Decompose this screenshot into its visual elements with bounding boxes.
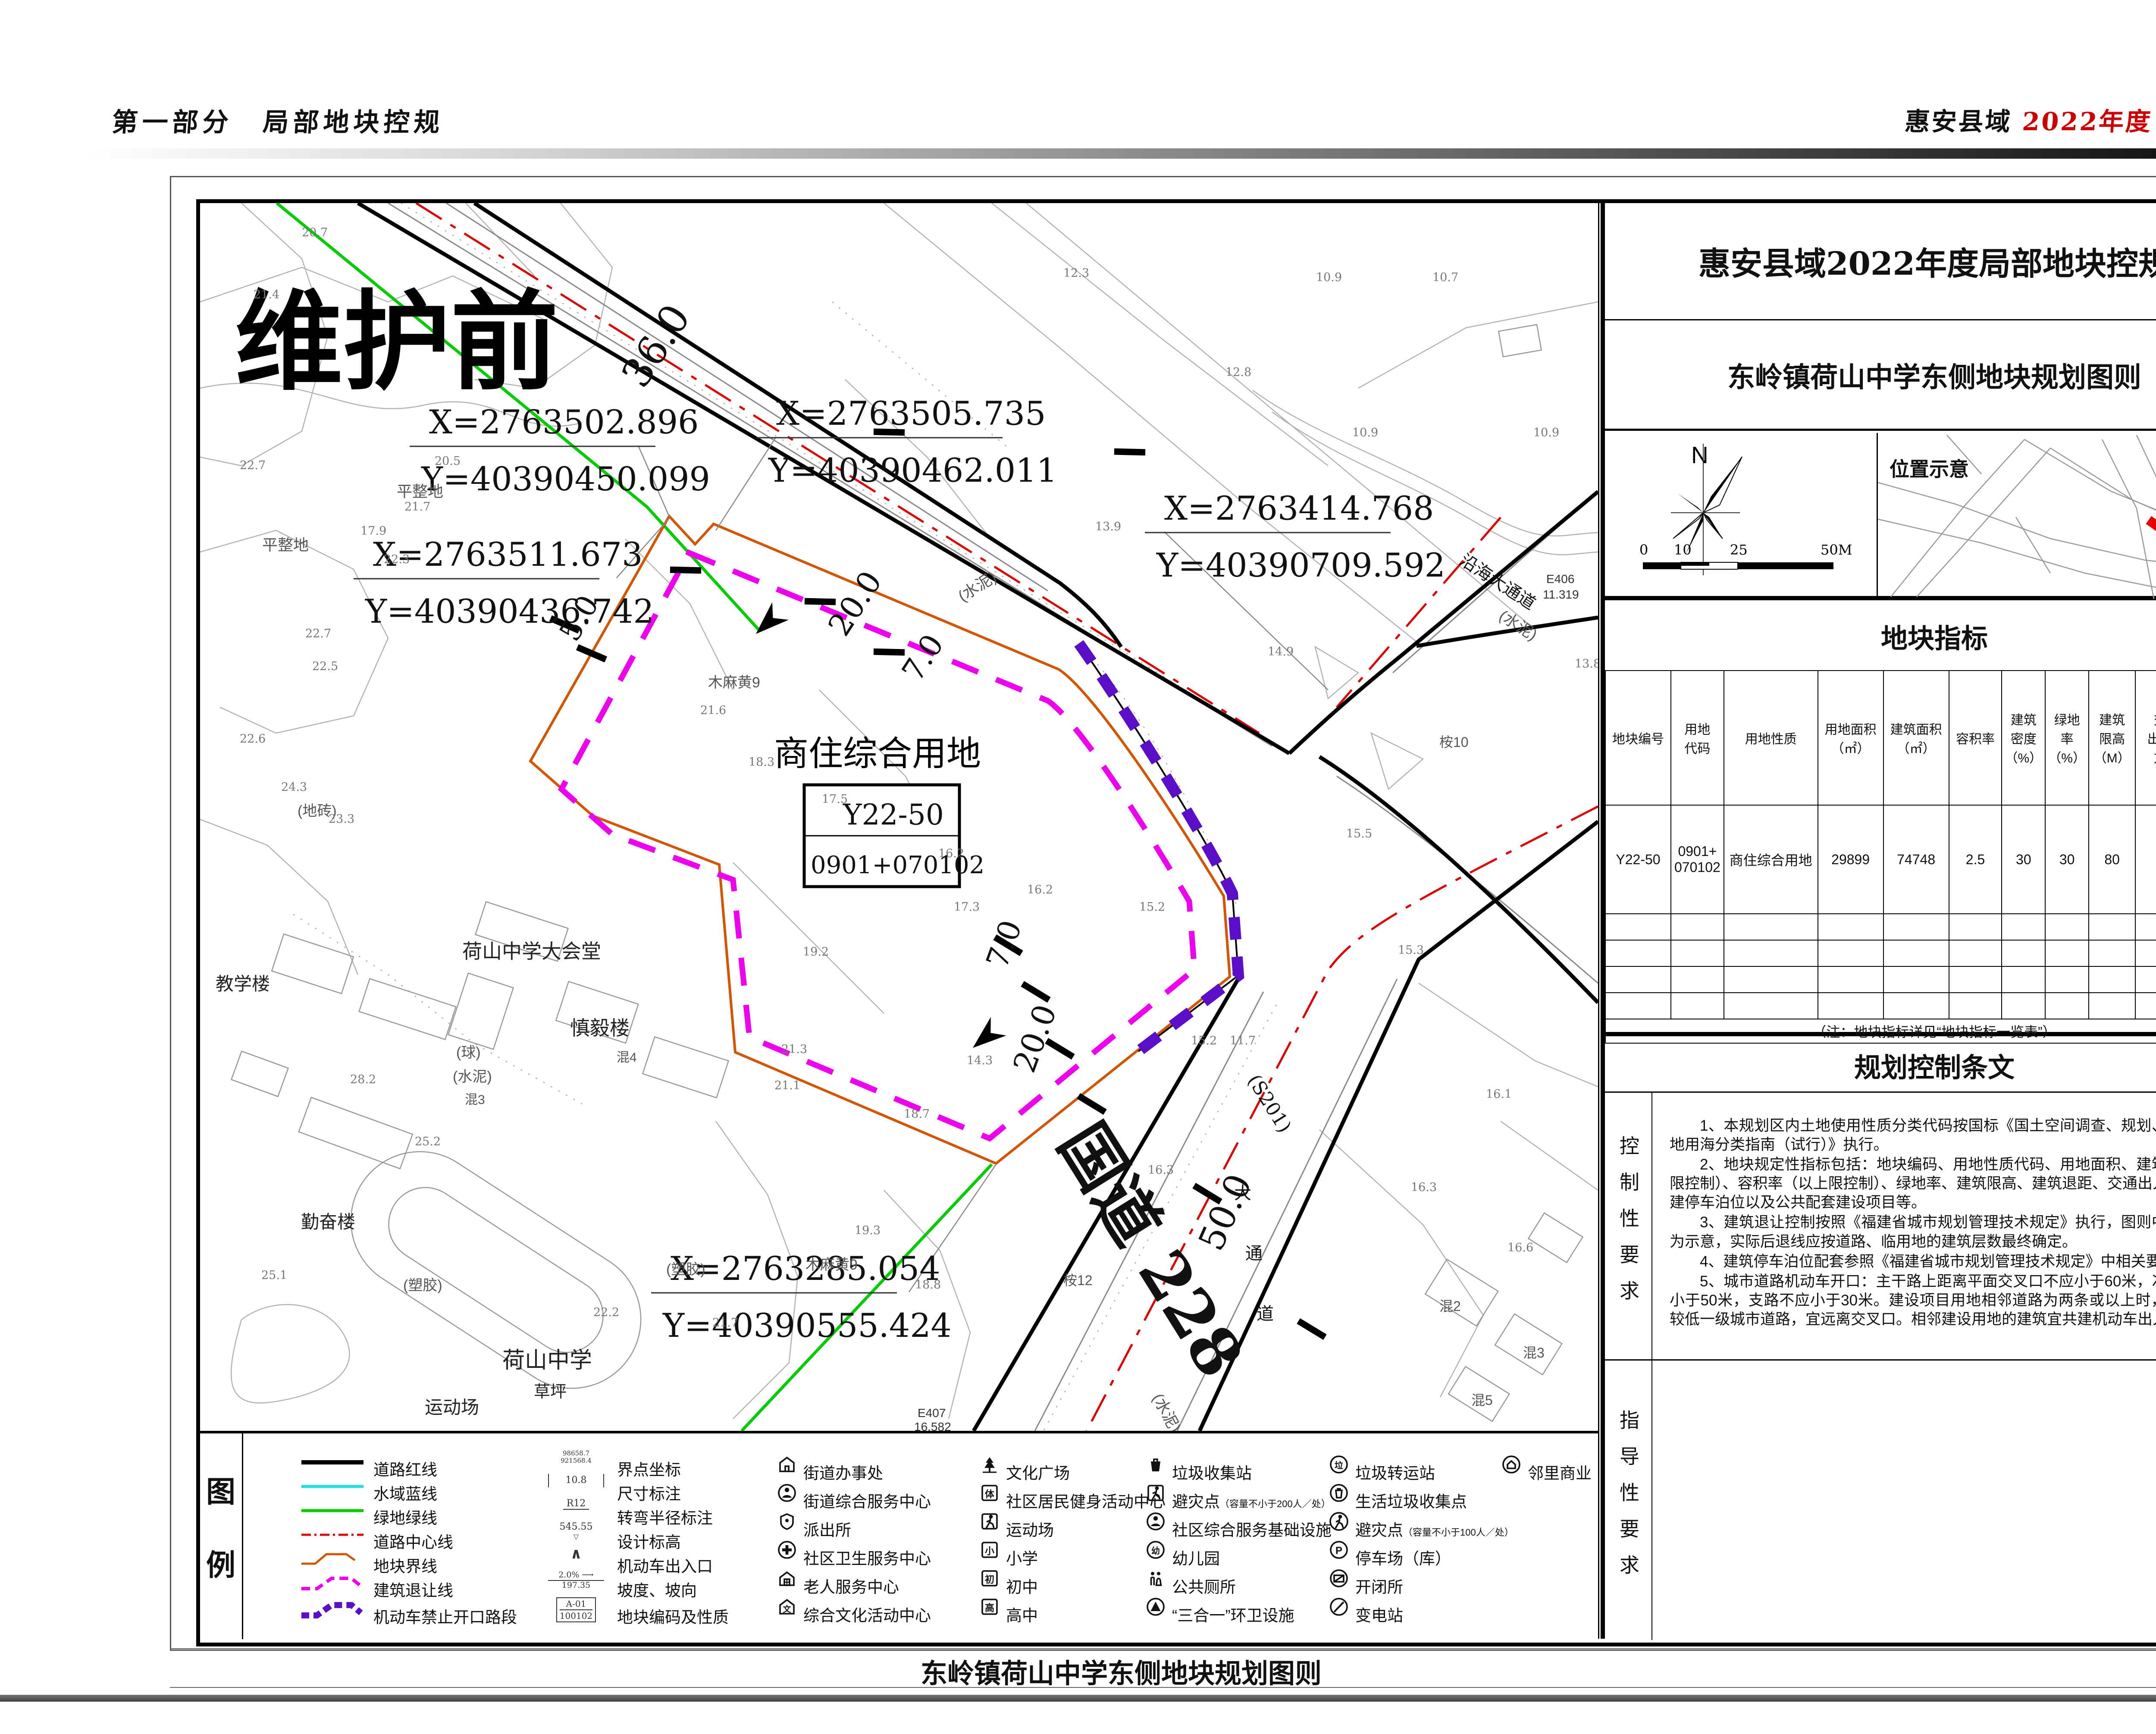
elevation-label: 18.8 bbox=[915, 1278, 941, 1292]
doc-section-title: 第一部分 局部地块控规 bbox=[111, 101, 445, 139]
indicators-cell: 74748 bbox=[1883, 805, 1949, 914]
place-label: 16.582 bbox=[914, 1420, 951, 1431]
elevation-label: 10.9 bbox=[1352, 426, 1378, 439]
elevation-label: 18.3 bbox=[749, 756, 774, 769]
公共厕所-icon bbox=[1145, 1568, 1166, 1589]
legend-item-label: 转弯半径标注 bbox=[617, 1505, 713, 1528]
indicators-cell: 2.5 bbox=[1949, 805, 2002, 914]
indicators-col-header: 绿地 率 （%） bbox=[2045, 671, 2089, 805]
legend-item-label: 生活垃圾收集点 bbox=[1355, 1489, 1467, 1512]
legend-item-label: 道路红线 bbox=[373, 1457, 437, 1480]
provision-paragraph: 5、城市道路机动车开口：主干路上距离平面交叉口不应小于60米，次干路上不应小于5… bbox=[1670, 1272, 2156, 1329]
place-label: E406 bbox=[1546, 572, 1574, 586]
elevation-label: 22.7 bbox=[240, 459, 266, 472]
变电站-icon bbox=[1329, 1596, 1349, 1617]
legend-item-label: 运动场 bbox=[1006, 1517, 1054, 1540]
legend-annot-symbol-coords: 98658.7921568.4 bbox=[548, 1450, 604, 1464]
indicators-empty-cell bbox=[2045, 914, 2089, 940]
place-label: 混4 bbox=[617, 1050, 637, 1065]
elevation-label: 17.9 bbox=[360, 524, 386, 538]
elevation-label: 22.7 bbox=[305, 627, 331, 640]
place-label: 混5 bbox=[1471, 1392, 1493, 1408]
legend-char-2: 例 bbox=[206, 1541, 235, 1584]
legend-item-note: （容量不小于100人／处） bbox=[1403, 1527, 1514, 1538]
indicators-col-header: 建筑 密度 （%） bbox=[2002, 671, 2045, 805]
road-name-label: 道 bbox=[1257, 1304, 1274, 1324]
indicators-empty-cell bbox=[1949, 940, 2002, 966]
coordinate-x: X=2763505.735 bbox=[776, 394, 1046, 433]
legend-item-label: 社区综合服务基础设施 bbox=[1172, 1517, 1332, 1540]
indicators-title: 地块指标 bbox=[1605, 617, 2156, 655]
legend-item-label: 公共厕所 bbox=[1172, 1574, 1236, 1597]
elevation-label: 21.7 bbox=[404, 500, 430, 514]
legend-item-label: 建筑退让线 bbox=[373, 1577, 453, 1601]
indicators-empty-cell bbox=[1724, 993, 1818, 1019]
indicators-col-header: 地块编号 bbox=[1605, 671, 1671, 805]
road-name-label: 沿海大通道 bbox=[1456, 550, 1539, 614]
svg-text:垃: 垃 bbox=[1335, 1460, 1343, 1471]
legend-item-label: 避灾点（容量不小于200人／处） bbox=[1172, 1489, 1331, 1512]
indicators-empty-cell bbox=[1671, 940, 1724, 966]
place-label: 11.319 bbox=[1543, 588, 1579, 601]
indicators-empty-cell bbox=[1883, 940, 1949, 966]
coordinate-y: Y=40390450.099 bbox=[421, 460, 710, 498]
place-label: 教学楼 bbox=[216, 974, 270, 994]
provision-paragraph: 1、本规划区内土地使用性质分类代码按国标《国土空间调查、规划、用途管制用地用海分… bbox=[1670, 1116, 2156, 1154]
indicators-empty-cell bbox=[2135, 993, 2156, 1019]
watermark-before-maintenance: 维护前 bbox=[235, 282, 558, 402]
legend-item-label: 地块编码及性质 bbox=[617, 1604, 729, 1627]
svg-text:P: P bbox=[1335, 1545, 1342, 1557]
legend-item-label: 机动车出入口 bbox=[617, 1553, 713, 1577]
indicators-empty-cell bbox=[2089, 993, 2135, 1019]
place-label: (球) bbox=[456, 1044, 481, 1061]
elevation-label: 13.9 bbox=[1095, 520, 1121, 533]
provision-paragraph: 4、建筑停车泊位配套参照《福建省城市规划管理技术规定》中相关要求执行。 bbox=[1670, 1252, 2156, 1271]
coordinate-y: Y=40390436.742 bbox=[365, 592, 654, 630]
location-sketch bbox=[1878, 433, 2156, 600]
place-label: 混3 bbox=[1523, 1345, 1545, 1361]
indicators-empty-cell bbox=[2002, 914, 2045, 940]
indicators-empty-cell bbox=[1949, 914, 2002, 940]
legend-item-label: 垃圾收集站 bbox=[1172, 1460, 1252, 1483]
svg-text:高: 高 bbox=[985, 1602, 994, 1613]
legend-annot-symbol-dim: 10.8 bbox=[548, 1474, 604, 1487]
legend-annot-symbol-slope: 2.0% ⟶197.35 bbox=[548, 1571, 604, 1590]
indicators-empty-cell bbox=[2002, 940, 2045, 966]
legend-item-label: 开闭所 bbox=[1355, 1574, 1403, 1597]
elevation-label: 10.7 bbox=[1432, 271, 1458, 284]
避灾点-icon bbox=[1145, 1483, 1166, 1503]
indicators-empty-cell bbox=[2002, 993, 2045, 1019]
road-width-label: 7.0 bbox=[979, 916, 1029, 973]
indicators-empty-cell bbox=[1724, 914, 1818, 940]
幼儿园-icon: 幼 bbox=[1145, 1540, 1166, 1560]
sheet-bottom-title: 东岭镇荷山中学东侧地块规划图则 bbox=[690, 1652, 1552, 1690]
elevation-label: 20.5 bbox=[435, 455, 461, 468]
provisions-row-control: 控制性要求 1、本规划区内土地使用性质分类代码按国标《国土空间调查、规划、用途管… bbox=[1605, 1093, 2156, 1361]
elevation-label: 21.6 bbox=[700, 704, 726, 717]
legend-item-label: 文化广场 bbox=[1006, 1460, 1070, 1483]
elevation-label: 19.2 bbox=[803, 945, 829, 959]
elevation-label: 16.6 bbox=[1507, 1241, 1533, 1254]
indicators-empty-cell bbox=[2045, 993, 2089, 1019]
location-parcel-marker bbox=[2146, 516, 2156, 532]
scale-bar: 0 10 25 50M bbox=[1639, 542, 1852, 569]
elevation-label: 16.1 bbox=[1486, 1088, 1512, 1101]
indicators-empty-cell bbox=[1724, 966, 1818, 993]
legend-item-label: 坡度、坡向 bbox=[617, 1577, 697, 1601]
legend-annot-symbol-entry: ∧ bbox=[548, 1546, 604, 1561]
legend-item-label: 垃圾转运站 bbox=[1355, 1460, 1435, 1483]
elevation-label: 22.6 bbox=[240, 732, 266, 746]
road-width-label: 20.0 bbox=[1006, 1000, 1064, 1077]
elevation-label: 15.2 bbox=[1191, 1034, 1217, 1047]
indicators-col-header: 建筑 限高 （M） bbox=[2089, 671, 2135, 805]
compass-star-icon bbox=[1671, 457, 1742, 554]
生活垃圾收集点-icon bbox=[1329, 1483, 1349, 1503]
垃圾收集站-icon bbox=[1145, 1454, 1166, 1475]
elevation-label: 10.9 bbox=[1316, 271, 1342, 284]
elevation-label: 20.7 bbox=[302, 226, 328, 239]
elevation-label: 21.4 bbox=[254, 288, 279, 301]
indicators-empty-cell bbox=[2089, 914, 2135, 940]
place-label: 木麻黄9 bbox=[805, 1257, 858, 1273]
社区卫生服务中心-icon bbox=[777, 1540, 797, 1560]
legend-line-swatch bbox=[298, 1549, 367, 1569]
elevation-label: 12.3 bbox=[1063, 267, 1089, 280]
legend-item-label: 避灾点（容量不小于100人／处） bbox=[1355, 1517, 1514, 1540]
elevation-label: 22.5 bbox=[312, 660, 338, 673]
road-curbs bbox=[388, 203, 1598, 1431]
elevation-label: 21.1 bbox=[774, 1079, 800, 1092]
elevation-label: 11.7 bbox=[1230, 1034, 1256, 1047]
compass-scale: N 0 10 25 50M bbox=[1605, 433, 1877, 600]
indicators-cell: Y22-50 bbox=[1605, 805, 1671, 914]
place-label: 荷山中学大会堂 bbox=[462, 940, 601, 963]
provisions-title: 规划控制条文 bbox=[1605, 1046, 2156, 1085]
indicators-empty-cell bbox=[2089, 940, 2135, 966]
panel-compass-location: N 0 10 25 50M bbox=[1605, 433, 2156, 600]
高中-icon: 高 bbox=[979, 1596, 1000, 1617]
indicators-col-header: 容积率 bbox=[1949, 671, 2002, 805]
indicators-cell: 29899 bbox=[1818, 805, 1883, 914]
indicators-empty-cell bbox=[1883, 966, 1949, 993]
elevation-label: 16.3 bbox=[1148, 1163, 1174, 1177]
place-label: (水泥) bbox=[453, 1069, 492, 1085]
scale-label: 0 bbox=[1639, 542, 1648, 558]
legend-line-swatch bbox=[298, 1477, 367, 1496]
legend-char-1: 图 bbox=[206, 1468, 235, 1511]
legend-item-label: 老人服务中心 bbox=[803, 1574, 899, 1597]
legend-item-label: 街道办事处 bbox=[803, 1460, 883, 1483]
scale-label: 25 bbox=[1730, 542, 1748, 558]
place-label: 慎毅楼 bbox=[570, 1017, 630, 1039]
place-label: 运动场 bbox=[425, 1397, 479, 1417]
indicators-empty-cell bbox=[2045, 966, 2089, 993]
elevation-label: 16.3 bbox=[1411, 1181, 1437, 1194]
legend-item-note: （容量不小于200人／处） bbox=[1220, 1499, 1331, 1509]
避灾点-icon bbox=[1329, 1511, 1349, 1532]
elevation-label: 15.2 bbox=[1139, 900, 1165, 914]
legend-line-swatch bbox=[298, 1573, 367, 1593]
街道办事处-icon bbox=[777, 1454, 797, 1475]
legend-item-label: 邻里商业 bbox=[1528, 1460, 1592, 1483]
legend-item-label: 变电站 bbox=[1355, 1602, 1403, 1626]
svg-text:幼: 幼 bbox=[1151, 1546, 1160, 1556]
indicators-col-header: 用地性质 bbox=[1724, 671, 1818, 805]
legend: 图 例 道路红线水域蓝线绿地绿线道路中心线地块界线建筑退让线机动车禁止开口路段9… bbox=[200, 1431, 1598, 1639]
legend-item-label: 初中 bbox=[1006, 1574, 1038, 1597]
indicators-empty-cell bbox=[1949, 993, 2002, 1019]
scale-label: 10 bbox=[1674, 542, 1692, 558]
indicators-empty-cell bbox=[1818, 914, 1883, 940]
elevation-label: 15.5 bbox=[1346, 827, 1372, 840]
indicators-empty-cell bbox=[1883, 914, 1949, 940]
社区综合服务基础设施-icon bbox=[1145, 1511, 1166, 1532]
control-requirements-label: 控制性要求 bbox=[1605, 1093, 1652, 1359]
road-name-label: 大 bbox=[1234, 1183, 1251, 1203]
legend-title-cell: 图 例 bbox=[200, 1433, 243, 1639]
indicators-empty-cell bbox=[1605, 940, 1671, 966]
elevation-label: 16.2 bbox=[1027, 883, 1053, 897]
垃圾转运站-icon: 垃 bbox=[1329, 1454, 1349, 1475]
info-panel: 惠安县域2022年度局部地块控规 东岭镇荷山中学东侧地块规划图则 N 0 bbox=[1601, 203, 2156, 1639]
街道综合服务中心-icon bbox=[777, 1483, 797, 1503]
小学-icon: 小 bbox=[979, 1540, 1000, 1560]
coordinate-x: X=2763502.896 bbox=[429, 403, 699, 441]
edition-region: 惠安县域 bbox=[1904, 107, 2023, 136]
legend-item-label: 街道综合服务中心 bbox=[803, 1489, 931, 1512]
place-label: 混2 bbox=[1439, 1298, 1461, 1314]
plan-map: 维护前X=2763502.896Y=40390450.099X=2763505.… bbox=[200, 203, 1598, 1431]
coordinate-y: Y=40390709.592 bbox=[1156, 546, 1445, 584]
north-label: N bbox=[1691, 442, 1708, 468]
coordinate-x: X=2763414.768 bbox=[1164, 489, 1434, 527]
派出所-icon bbox=[777, 1511, 797, 1532]
indicators-empty-cell bbox=[1671, 914, 1724, 940]
elevation-label: 10.9 bbox=[1533, 426, 1559, 439]
indicators-cell: 80 bbox=[2089, 805, 2135, 914]
legend-item-label: “三合一”环卫设施 bbox=[1172, 1602, 1294, 1626]
road-name-label: 通 bbox=[1245, 1244, 1263, 1264]
indicators-empty-cell bbox=[1724, 940, 1818, 966]
indicators-empty-cell bbox=[2089, 966, 2135, 993]
运动场-icon bbox=[979, 1511, 1000, 1532]
elevation-label: 24.3 bbox=[281, 781, 307, 794]
legend-item-label: 道路中心线 bbox=[373, 1529, 453, 1552]
indicators-col-header: 交通 出入口 方位 bbox=[2135, 671, 2156, 805]
indicators-empty-cell bbox=[1605, 993, 1671, 1019]
legend-item-label: 设计标高 bbox=[617, 1529, 681, 1552]
place-label: (塑胶) bbox=[666, 1261, 705, 1278]
panel-main-title: 惠安县域2022年度局部地块控规 bbox=[1605, 203, 2156, 320]
place-label: (水泥) bbox=[955, 568, 1000, 605]
indicators-empty-cell bbox=[1671, 993, 1724, 1019]
doc-edition-title: 惠安县域 2022年度 局部地块控规 bbox=[1904, 101, 2156, 138]
panel-indicators: 地块指标 地块编号用地 代码用地性质用地面积 （㎡）建筑面积 （㎡）容积率建筑 … bbox=[1605, 605, 2156, 1036]
indicators-empty-cell bbox=[1949, 966, 2002, 993]
老人服务中心-icon bbox=[777, 1568, 797, 1589]
legend-line-swatch bbox=[298, 1501, 367, 1521]
legend-item-label: 派出所 bbox=[803, 1517, 851, 1540]
indicators-cell: 30 bbox=[2045, 805, 2089, 914]
provision-paragraph: 3、建筑退让控制按照《福建省城市规划管理技术规定》执行，图则中后退控制线为示意，… bbox=[1670, 1213, 2156, 1251]
edition-year: 2022年度 bbox=[2021, 107, 2153, 136]
parcel-code-class: 0901+070102 bbox=[811, 851, 984, 879]
plan-map-canvas: 维护前X=2763502.896Y=40390450.099X=2763505.… bbox=[200, 203, 1598, 1431]
indicators-empty-cell bbox=[2002, 966, 2045, 993]
place-label: (水泥) bbox=[1496, 606, 1541, 644]
guidance-requirements-label: 指导性要求 bbox=[1605, 1361, 1652, 1640]
provisions-text: 1、本规划区内土地使用性质分类代码按国标《国土空间调查、规划、用途管制用地用海分… bbox=[1670, 1116, 2156, 1330]
indicators-cell: 商住综合用地 bbox=[1724, 805, 1818, 914]
legend-item-label: 界点坐标 bbox=[617, 1457, 681, 1480]
svg-text:文: 文 bbox=[783, 1604, 791, 1614]
scale-label: 50M bbox=[1821, 542, 1852, 558]
legend-line-swatch bbox=[298, 1452, 367, 1472]
legend-item-label: 综合文化活动中心 bbox=[803, 1602, 931, 1626]
place-label: 勤奋楼 bbox=[301, 1212, 355, 1232]
place-label: 混3 bbox=[465, 1093, 485, 1107]
legend-item-label: 社区居民健身活动中心 bbox=[1006, 1489, 1166, 1512]
place-label: 荷山中学 bbox=[502, 1348, 592, 1373]
road-width-label: 7.0 bbox=[895, 628, 950, 687]
indicators-empty-cell bbox=[2045, 940, 2089, 966]
indicators-empty-cell bbox=[2135, 914, 2156, 940]
legend-item-label: 高中 bbox=[1006, 1602, 1038, 1626]
legend-line-swatch bbox=[298, 1600, 367, 1620]
place-label: 平整地 bbox=[262, 536, 309, 554]
legend-annot-symbol-radius: R12 bbox=[548, 1498, 604, 1510]
indicators-col-header: 用地面积 （㎡） bbox=[1818, 671, 1883, 805]
elevation-label: 28.2 bbox=[350, 1073, 376, 1086]
coordinate-x: X=2763511.673 bbox=[373, 535, 642, 574]
legend-annot-symbol-code: A-01100102 bbox=[548, 1597, 604, 1622]
“三合一”环卫设施-icon bbox=[1145, 1596, 1166, 1617]
panel-sheet-title: 东岭镇荷山中学东侧地块规划图则 bbox=[1605, 322, 2156, 431]
legend-line-swatch bbox=[298, 1525, 367, 1545]
svg-text:小: 小 bbox=[985, 1546, 994, 1556]
place-label: (水泥) bbox=[1149, 1391, 1184, 1431]
legend-item-label: 绿地绿线 bbox=[373, 1505, 437, 1528]
coordinate-y: Y=40390555.424 bbox=[662, 1306, 952, 1345]
indicators-empty-cell bbox=[2135, 966, 2156, 993]
indicators-empty-cell bbox=[1818, 940, 1883, 966]
elevation-label: 22.3 bbox=[384, 553, 410, 566]
邻里商业-icon bbox=[1501, 1454, 1522, 1475]
初中-icon: 初 bbox=[979, 1568, 1000, 1589]
legend-item-label: 尺寸标注 bbox=[617, 1481, 681, 1504]
elevation-label: 13.8 bbox=[1575, 657, 1598, 671]
provisions-grid: 控制性要求 1、本规划区内土地使用性质分类代码按国标《国土空间调查、规划、用途管… bbox=[1605, 1091, 2156, 1640]
elevation-label: 23.3 bbox=[329, 812, 354, 826]
legend-item-label: 幼儿园 bbox=[1172, 1546, 1220, 1569]
elevation-label: 21.3 bbox=[781, 1043, 807, 1056]
社区居民健身活动中心-icon: 体 bbox=[979, 1483, 1000, 1503]
开闭所-icon bbox=[1329, 1568, 1349, 1589]
elevation-label: 25.1 bbox=[261, 1269, 287, 1282]
legend-item-label: 水域蓝线 bbox=[373, 1481, 437, 1504]
停车场（库）-icon: P bbox=[1329, 1540, 1349, 1560]
indicators-empty-cell bbox=[2135, 940, 2156, 966]
legend-item-label: 社区卫生服务中心 bbox=[803, 1546, 931, 1569]
elevation-label: 19.3 bbox=[855, 1224, 881, 1237]
indicators-col-header: 用地 代码 bbox=[1671, 671, 1724, 805]
place-label: 桉10 bbox=[1439, 734, 1469, 750]
legend-item-label: 地块界线 bbox=[373, 1553, 437, 1577]
elevation-label: 18.7 bbox=[904, 1107, 930, 1121]
road-width-label: 36.0 bbox=[613, 296, 699, 395]
indicators-cell: 0901+ 070102 bbox=[1671, 805, 1724, 914]
综合文化活动中心-icon: 文 bbox=[777, 1596, 797, 1617]
svg-text:体: 体 bbox=[985, 1489, 995, 1499]
panel-provisions: 规划控制条文 控制性要求 1、本规划区内土地使用性质分类代码按国标《国土空间调查… bbox=[1605, 1036, 2156, 1639]
elevation-label: 15.3 bbox=[1398, 944, 1424, 957]
indicators-empty-cell bbox=[1883, 993, 1949, 1019]
header-gradient-rule bbox=[86, 148, 2156, 159]
elevation-label: 21.7 bbox=[712, 1316, 738, 1330]
indicators-table: 地块编号用地 代码用地性质用地面积 （㎡）建筑面积 （㎡）容积率建筑 密度 （%… bbox=[1605, 670, 2156, 1044]
place-label: (塑胶) bbox=[403, 1277, 442, 1294]
legend-item-label: 停车场（库） bbox=[1355, 1546, 1451, 1569]
place-label: E407 bbox=[918, 1406, 946, 1420]
indicators-empty-cell bbox=[1671, 966, 1724, 993]
indicators-empty-cell bbox=[1818, 993, 1883, 1019]
place-label: 平整地 bbox=[397, 483, 443, 500]
legend-annot-symbol-elev: 545.55▽ bbox=[548, 1522, 604, 1541]
elevation-label: 25.2 bbox=[415, 1135, 441, 1148]
coordinate-y: Y=40390462.011 bbox=[768, 451, 1057, 489]
elevation-label: 22.2 bbox=[593, 1306, 619, 1319]
provisions-row-guidance: 指导性要求 bbox=[1605, 1361, 2156, 1640]
indicators-empty-cell bbox=[1605, 914, 1671, 940]
place-label: 桉12 bbox=[1063, 1273, 1093, 1288]
place-label: 木麻黄9 bbox=[708, 674, 760, 691]
title-strip-top-line bbox=[170, 1648, 2156, 1649]
footer-bar bbox=[0, 1695, 2156, 1702]
place-label: 草坪 bbox=[534, 1383, 567, 1401]
文化广场-icon bbox=[979, 1454, 1000, 1475]
provision-paragraph: 2、地块规定性指标包括：地块编码、用地性质代码、用地面积、建筑密度（以上限控制）… bbox=[1670, 1155, 2156, 1212]
elevation-label: 12.8 bbox=[1225, 366, 1251, 379]
elevation-label: 17.3 bbox=[954, 900, 980, 914]
elevation-label: 14.3 bbox=[967, 1054, 993, 1067]
legend-item-label: 机动车禁止开口路段 bbox=[373, 1604, 517, 1627]
indicators-empty-cell bbox=[1818, 966, 1883, 993]
parcel-code-id: Y22-50 bbox=[843, 798, 944, 831]
indicators-empty-cell bbox=[1605, 966, 1671, 993]
svg-text:初: 初 bbox=[985, 1574, 994, 1585]
legend-item-label: 小学 bbox=[1006, 1546, 1038, 1569]
indicators-col-header: 建筑面积 （㎡） bbox=[1883, 671, 1949, 805]
elevation-label: 14.9 bbox=[1268, 645, 1294, 658]
indicators-cell: E/N bbox=[2135, 805, 2156, 914]
parcel-use-label: 商住综合用地 bbox=[774, 734, 981, 773]
indicators-cell: 30 bbox=[2002, 805, 2045, 914]
